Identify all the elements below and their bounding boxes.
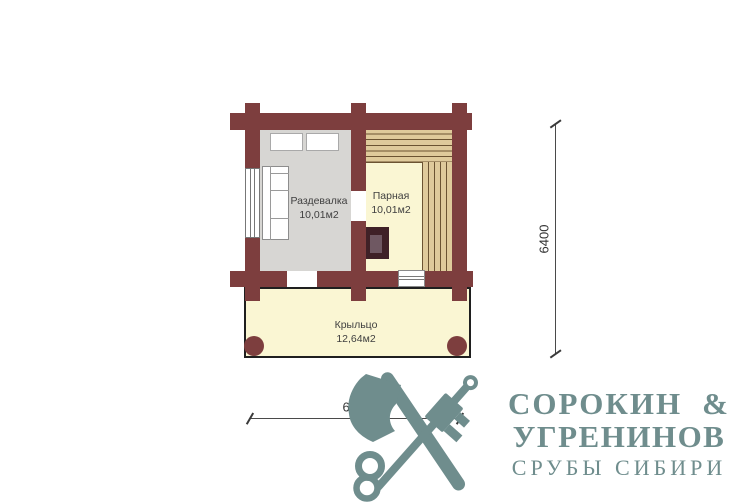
threshold-line-1 (399, 276, 424, 277)
sofa-cushion-line-2 (270, 190, 289, 191)
steam-room-bench-top (364, 129, 452, 163)
steam-room-area: 10,01м2 (371, 204, 410, 218)
brand-tagline: СРУБЫ СИБИРИ (506, 455, 732, 481)
brand-ampersand: & (702, 388, 730, 420)
door-opening-dressing-room (287, 271, 317, 287)
stove-firebox (370, 235, 382, 253)
porch-name: Крыльцо (335, 319, 378, 333)
window-left-wall (245, 168, 260, 238)
floor-plan-page: Раздевалка 10,01м2 Парная 10,01м2 Крыльц… (0, 0, 753, 502)
threshold-line-2 (399, 279, 424, 280)
steam-room-label: Парная 10,01м2 (371, 190, 410, 217)
brand-wordmark: СОРОКИН & УГРЕНИНОВ СРУБЫ СИБИРИ (506, 388, 732, 481)
wall-right (452, 103, 467, 301)
sofa-cushion-line-3 (270, 218, 289, 219)
sofa-backrest-line (270, 166, 271, 240)
brand-name-2: УГРЕНИНОВ (506, 420, 732, 453)
dressing-room-label: Раздевалка 10,01м2 (290, 195, 347, 222)
sofa-cushion-line-1 (270, 173, 289, 174)
porch-label: Крыльцо 12,64м2 (335, 319, 378, 346)
dressing-room-name: Раздевалка (290, 195, 347, 209)
dressing-room-area: 10,01м2 (290, 209, 347, 223)
dimension-line-vertical (555, 124, 556, 354)
axe-key-logo-icon (338, 368, 513, 502)
porch-post-right (447, 336, 467, 356)
sofa (262, 166, 289, 240)
dimension-value-vertical: 6400 (537, 225, 552, 254)
porch-area: 12,64м2 (335, 333, 378, 347)
porch-post-left (244, 336, 264, 356)
window-pane-line-2 (254, 168, 255, 238)
cabinet-1 (270, 133, 303, 151)
brand-line-1: СОРОКИН & (506, 388, 732, 420)
door-opening-between-rooms (351, 191, 366, 221)
window-pane-line-1 (250, 168, 251, 238)
cabinet-2 (306, 133, 339, 151)
steam-room-name: Парная (371, 190, 410, 204)
steam-room-bench-right (422, 162, 453, 271)
brand-name-1: СОРОКИН (508, 388, 682, 420)
